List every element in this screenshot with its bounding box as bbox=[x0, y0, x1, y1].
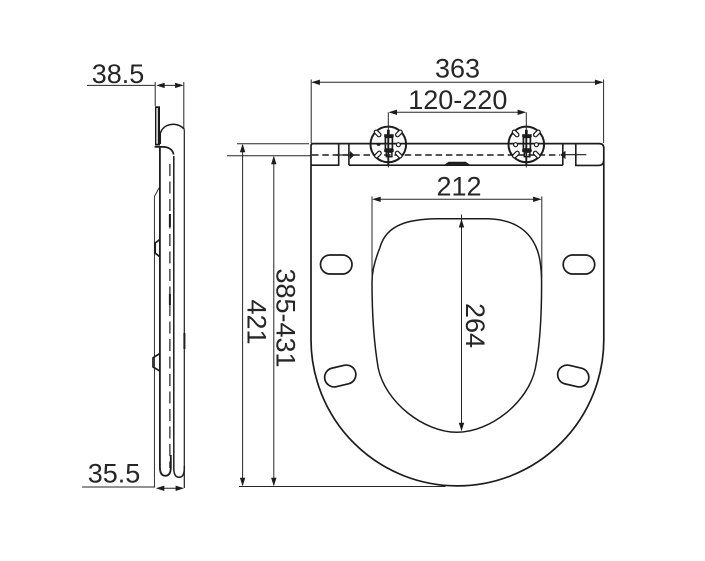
svg-text:385-431: 385-431 bbox=[271, 268, 301, 367]
svg-text:212: 212 bbox=[436, 172, 481, 202]
svg-text:264: 264 bbox=[460, 303, 490, 348]
svg-text:421: 421 bbox=[242, 299, 272, 344]
svg-text:38.5: 38.5 bbox=[92, 59, 145, 89]
svg-text:35.5: 35.5 bbox=[88, 459, 141, 489]
svg-text:363: 363 bbox=[435, 54, 480, 84]
svg-text:120-220: 120-220 bbox=[408, 85, 507, 115]
